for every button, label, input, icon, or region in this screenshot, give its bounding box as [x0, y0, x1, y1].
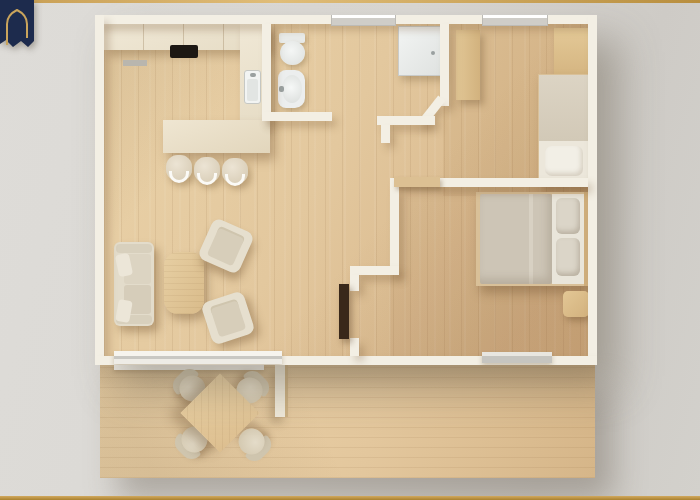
kitchen-sink	[244, 70, 261, 104]
gold-top-rule	[0, 0, 700, 3]
master-bedroom-wall-lower	[350, 275, 359, 291]
shower-drain	[431, 51, 435, 55]
exterior-wall-right	[588, 15, 597, 365]
wardrobe	[456, 30, 480, 100]
double-bed	[476, 192, 588, 286]
bathroom-wall-left	[262, 24, 271, 120]
kitchen-island	[163, 120, 270, 153]
corner-cabinet	[554, 28, 588, 78]
coffee-table	[164, 252, 204, 314]
tap-icon	[279, 86, 284, 92]
sofa-armrest	[116, 244, 152, 253]
sliding-glass-door-master	[482, 352, 552, 363]
single-bed-blanket	[539, 75, 589, 141]
gold-bottom-rule	[0, 496, 700, 500]
wall-vent	[123, 60, 147, 66]
shower-tray	[398, 26, 443, 76]
faucet-icon	[250, 73, 256, 77]
single-bed	[538, 74, 590, 186]
master-bedroom-wall-upper	[390, 187, 399, 275]
nightstand	[563, 291, 589, 317]
window	[482, 15, 548, 26]
bathroom-wall-bottom	[262, 112, 332, 121]
shower-nook-wall	[440, 24, 449, 106]
single-bed-pillow	[545, 146, 583, 176]
bar-stool	[194, 157, 220, 183]
master-bedroom-wall-lower	[350, 338, 359, 356]
master-bedroom-wall-jog	[350, 266, 399, 275]
sliding-glass-door-living	[114, 351, 282, 364]
brand-arch-logo-icon	[0, 0, 34, 48]
double-bed-pillow	[556, 238, 580, 276]
window	[331, 15, 396, 26]
sink-basin	[247, 79, 258, 101]
toilet	[279, 33, 307, 67]
hallway-wall-stub	[381, 125, 390, 143]
outdoor-deck	[100, 365, 595, 478]
privacy-screen	[275, 365, 288, 417]
floor-plan-scene	[0, 0, 700, 500]
hallway-wall	[377, 116, 435, 125]
double-bed-duvet	[480, 194, 552, 284]
double-bed-pillow	[556, 198, 580, 234]
toilet-bowl	[280, 41, 305, 65]
pedestal-sink-basin	[282, 75, 302, 103]
bar-stool	[222, 158, 248, 184]
exterior-wall-left	[95, 15, 104, 365]
pedestal-sink	[278, 70, 305, 110]
open-door-leaf-master	[339, 284, 349, 339]
bar-stool	[166, 155, 192, 181]
pocket-door-bedroom	[394, 177, 440, 187]
cooktop	[170, 45, 198, 58]
sofa	[114, 242, 154, 326]
floor-plan-unit	[95, 15, 597, 365]
